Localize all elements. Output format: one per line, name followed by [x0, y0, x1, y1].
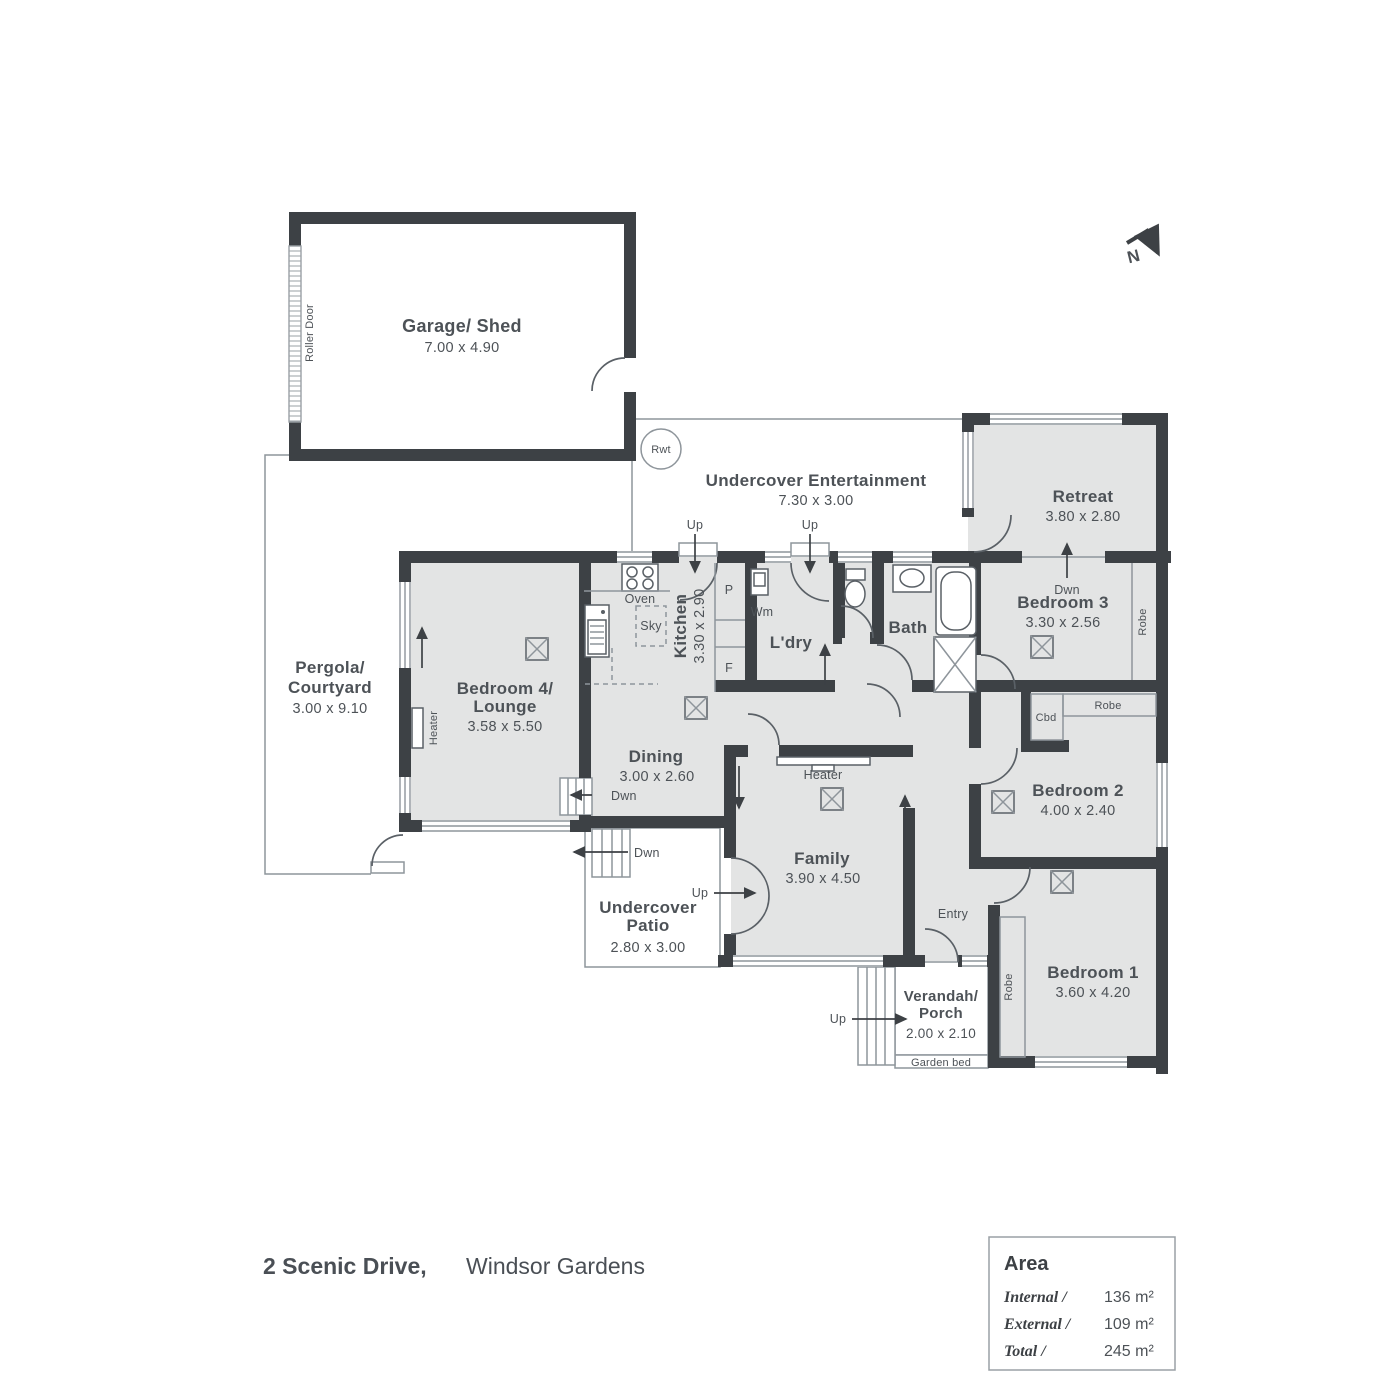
family-heater-label: Heater: [804, 768, 843, 782]
family-name: Family: [794, 849, 850, 868]
dining-name: Dining: [629, 747, 684, 766]
window: [765, 551, 791, 563]
bedroom3-robe-label: Robe: [1137, 608, 1149, 635]
bedroom1-robe-label: Robe: [1003, 973, 1015, 1000]
floorplan-page: N Garage/ Shed 7.00 x 4.90 Roller Door R…: [0, 0, 1400, 1400]
area-row-value: 109 m²: [1104, 1316, 1154, 1333]
pergola-name-2: Courtyard: [288, 678, 372, 697]
window: [733, 955, 883, 967]
retreat-dims: 3.80 x 2.80: [1045, 509, 1120, 525]
window: [399, 582, 411, 668]
area-row-value: 136 m²: [1104, 1289, 1154, 1306]
porch-name-1: Verandah/: [904, 988, 979, 1005]
entry-step-pad: [679, 543, 717, 556]
bedroom1-name: Bedroom 1: [1047, 963, 1139, 982]
rwt-label: Rwt: [651, 444, 671, 456]
area-title: Area: [1004, 1253, 1049, 1275]
kitchen-sink: [585, 605, 609, 657]
bedroom2-robe-label: Robe: [1094, 700, 1121, 712]
porch-dims: 2.00 x 2.10: [906, 1026, 976, 1041]
entertainment-name: Undercover Entertainment: [706, 471, 927, 490]
dwn-label: Dwn: [634, 846, 660, 860]
kitchen-dims: 3.30 x 2.90: [692, 588, 708, 663]
oven-label: Oven: [625, 592, 656, 606]
entertainment-dims: 7.30 x 3.00: [778, 493, 853, 509]
window: [422, 820, 570, 832]
patio-name-1: Undercover: [599, 898, 697, 917]
wm-label: Wm: [751, 605, 774, 619]
roller-door-label: Roller Door: [304, 304, 316, 362]
stairs-patio: [592, 829, 630, 877]
shower: [934, 637, 976, 692]
patio-dims: 2.80 x 3.00: [610, 940, 685, 956]
window: [838, 551, 872, 563]
pergola-gate-stub: [371, 862, 404, 873]
dining-dims: 3.00 x 2.60: [619, 769, 694, 785]
bedroom2-name: Bedroom 2: [1032, 781, 1124, 800]
porch-name-2: Porch: [919, 1005, 963, 1022]
heater-bedroom4: [412, 708, 423, 748]
family-dims: 3.90 x 4.50: [785, 871, 860, 887]
bedroom4-dims: 3.58 x 5.50: [467, 719, 542, 735]
garage-dims: 7.00 x 4.90: [424, 340, 499, 356]
window: [962, 955, 987, 967]
stairs-dining: [560, 778, 592, 815]
dwn-label: Dwn: [611, 789, 637, 803]
stairs-porch: [858, 967, 895, 1065]
window: [617, 551, 652, 563]
window: [399, 777, 411, 813]
garage-name: Garage/ Shed: [402, 316, 522, 336]
up-label: Up: [830, 1012, 846, 1026]
kitchen-name: Kitchen: [671, 594, 690, 658]
bedroom4-heater-label: Heater: [428, 711, 440, 745]
address-block: 2 Scenic Drive, Windsor Gardens: [263, 1253, 645, 1279]
retreat-name: Retreat: [1053, 487, 1114, 506]
bedroom4-name-1: Bedroom 4/: [457, 679, 554, 698]
area-panel: Area Internal / 136 m² External / 109 m²…: [989, 1237, 1175, 1370]
garage-door-arc: [592, 358, 625, 391]
patio-name-2: Patio: [626, 916, 669, 935]
bedroom3-dims: 3.30 x 2.56: [1025, 615, 1100, 631]
address-suburb: Windsor Gardens: [466, 1253, 645, 1279]
toilet: [845, 569, 865, 607]
area-row-label: Total /: [1004, 1343, 1047, 1360]
window: [893, 551, 932, 563]
area-row-label: External /: [1003, 1316, 1072, 1333]
vanity: [893, 565, 931, 592]
cbd-label: Cbd: [1036, 712, 1057, 724]
pergola-name-1: Pergola/: [295, 658, 364, 677]
sky-label: Sky: [640, 619, 662, 633]
bedroom4-name-2: Lounge: [473, 697, 536, 716]
area-row-value: 245 m²: [1104, 1343, 1154, 1360]
address-street: 2 Scenic Drive,: [263, 1253, 427, 1279]
up-label: Up: [692, 886, 708, 900]
laundry-name: L'dry: [770, 633, 813, 652]
bedroom1-dims: 3.60 x 4.20: [1055, 985, 1130, 1001]
pantry-label: P: [725, 583, 734, 597]
window: [990, 413, 1122, 425]
north-letter: N: [1125, 246, 1142, 267]
washing-machine: [751, 569, 768, 595]
window: [1035, 1056, 1127, 1068]
dwn-label: Dwn: [1054, 583, 1080, 597]
roller-door: [289, 246, 301, 422]
bathtub: [936, 567, 976, 635]
area-row-label: Internal /: [1003, 1289, 1068, 1306]
bath-name: Bath: [889, 618, 928, 637]
fridge-label: F: [725, 661, 733, 675]
window: [1156, 763, 1168, 847]
bedroom2-dims: 4.00 x 2.40: [1040, 803, 1115, 819]
up-label: Up: [687, 518, 703, 532]
garden-bed-label: Garden bed: [911, 1057, 971, 1069]
floorplan-svg: N Garage/ Shed 7.00 x 4.90 Roller Door R…: [0, 0, 1400, 1400]
up-label: Up: [802, 518, 818, 532]
window: [962, 432, 974, 508]
pergola-dims: 3.00 x 9.10: [292, 701, 367, 717]
entry-label: Entry: [938, 907, 969, 921]
north-indicator: N: [1125, 231, 1158, 267]
